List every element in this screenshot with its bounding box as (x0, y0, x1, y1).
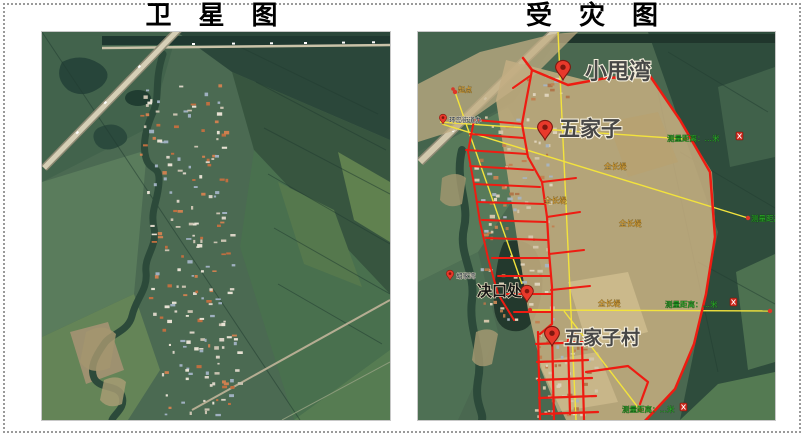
right-panel-title: 受 灾 图 (418, 1, 775, 31)
path-label-4: 全长堤 (598, 298, 621, 308)
map-label-hujiawan: 胡家湾 (456, 271, 476, 280)
left-panel-title: 卫 星 图 (42, 1, 390, 31)
disaster-map-image: 小甩湾 五家子 决口处 五家子村 环岛街道办 胡家湾 测量距离：…米 测量距离：… (418, 32, 775, 420)
map-label-wujiazicun: 五家子村 (564, 326, 640, 349)
measure-label-3: 测量距离：…米 (665, 299, 718, 309)
path-label-3: 全长堤 (619, 218, 642, 228)
map-label-huandaojie: 环岛街道办 (449, 115, 482, 124)
satellite-map-image (42, 32, 390, 420)
path-dot-icon (451, 87, 455, 91)
map-label-juekouchu: 决口处 (477, 282, 523, 300)
path-label-start: 起点 (458, 86, 472, 94)
path-label-1: 全长堤 (544, 195, 567, 205)
satellite-map-svg (42, 32, 390, 420)
measure-label-2: 测量距离：…米 (751, 213, 775, 223)
figure-page: 卫 星 图 受 灾 图 (0, 0, 804, 436)
measure-flag-icon (730, 298, 737, 306)
path-label-2: 全长堤 (604, 161, 627, 171)
measure-label-4: 测量距离：…米 (622, 404, 675, 414)
map-label-xiaoshuaiwan: 小甩湾 (585, 59, 651, 85)
measure-flag-icon (680, 403, 687, 411)
disaster-map-svg: 小甩湾 五家子 决口处 五家子村 环岛街道办 胡家湾 测量距离：…米 测量距离：… (418, 32, 775, 420)
measure-flag-icon (736, 132, 743, 140)
terrain (42, 32, 390, 420)
map-label-wujiazi: 五家子 (559, 116, 622, 141)
measure-label-1: 测量距离：…米 (667, 133, 720, 143)
